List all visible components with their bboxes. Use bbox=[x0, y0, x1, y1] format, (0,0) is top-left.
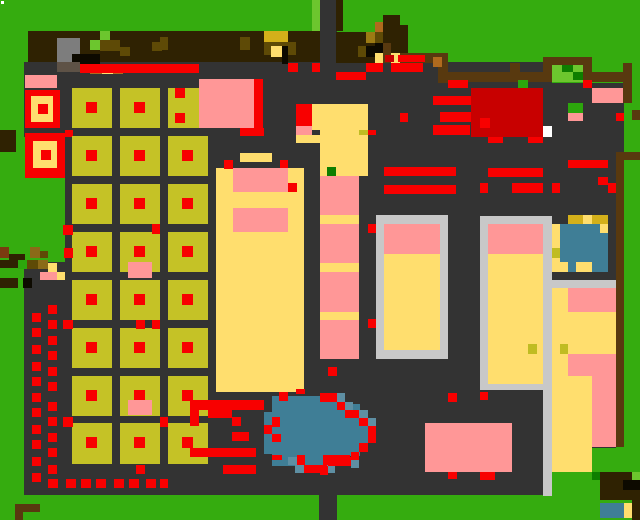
map-block-gold-roof bbox=[264, 31, 288, 42]
map-block-pale-building bbox=[488, 254, 543, 384]
map-block-shadow-black bbox=[375, 43, 383, 53]
map-block-white-marker bbox=[1, 1, 4, 4]
map-block-bush-green bbox=[327, 167, 336, 176]
map-block-red-item bbox=[359, 418, 368, 426]
map-block-olive-accent bbox=[560, 344, 568, 354]
map-block-tree-olive bbox=[240, 37, 250, 50]
map-block-red-item bbox=[48, 479, 58, 488]
map-block-silver-frame bbox=[543, 390, 552, 496]
map-block-dark-soil bbox=[0, 278, 18, 288]
map-block-red-item bbox=[368, 426, 376, 443]
map-block-red-item bbox=[583, 80, 592, 88]
map-block-dark-soil bbox=[0, 260, 18, 268]
map-block-red-item bbox=[48, 351, 57, 360]
map-block-red-item bbox=[391, 63, 423, 72]
map-block-pale-building bbox=[560, 262, 568, 272]
map-block-pale-building bbox=[320, 312, 359, 320]
map-block-red-item bbox=[48, 320, 57, 329]
map-block-tree-olive bbox=[40, 251, 48, 258]
map-block-fence-log bbox=[624, 152, 640, 160]
map-block-fence-log bbox=[632, 110, 640, 120]
map-block-red-item bbox=[240, 128, 264, 136]
map-block-red-item bbox=[48, 448, 57, 457]
map-block-red-item bbox=[351, 452, 359, 460]
map-block-bush-green bbox=[562, 65, 573, 72]
map-block-gate-green bbox=[568, 103, 583, 113]
map-block-red-item bbox=[160, 417, 168, 427]
map-block-red-item bbox=[398, 55, 425, 62]
map-block-red-item bbox=[48, 367, 57, 376]
map-block-pink-roof bbox=[592, 88, 623, 103]
map-block-red-item bbox=[182, 437, 193, 448]
map-block-red-item bbox=[134, 246, 145, 257]
map-block-red-item bbox=[232, 432, 249, 441]
map-block-red-item bbox=[480, 183, 488, 193]
map-block-red-item bbox=[296, 104, 312, 126]
game-map[interactable] bbox=[0, 0, 640, 520]
map-block-red-item bbox=[152, 224, 160, 234]
map-block-pink-roof bbox=[320, 320, 359, 359]
map-block-red-item bbox=[32, 362, 41, 371]
map-block-fence-log bbox=[623, 63, 632, 103]
map-block-red-item bbox=[134, 437, 145, 448]
map-block-red-item bbox=[254, 79, 263, 128]
map-block-light-grass bbox=[632, 472, 640, 480]
map-block-dark-soil bbox=[632, 490, 640, 520]
map-block-red-item bbox=[433, 96, 471, 105]
map-block-red-item bbox=[80, 64, 199, 73]
map-block-pale-building bbox=[240, 153, 272, 162]
map-block-pink-roof bbox=[488, 224, 543, 254]
map-block-fence-log bbox=[15, 512, 23, 520]
map-block-red-item bbox=[86, 198, 97, 209]
map-block-red-item bbox=[152, 320, 160, 329]
map-block-red-item bbox=[160, 479, 168, 488]
map-block-red-item bbox=[86, 437, 97, 448]
map-block-red-item bbox=[528, 137, 543, 143]
map-block-red-item bbox=[190, 410, 199, 426]
map-block-red-item bbox=[32, 313, 41, 322]
map-block-pale-building bbox=[552, 288, 592, 472]
map-block-pale-building bbox=[216, 168, 304, 392]
map-block-red-item bbox=[368, 130, 376, 135]
map-block-red-item bbox=[400, 113, 408, 122]
map-block-red-item bbox=[279, 392, 288, 401]
map-block-red-item bbox=[448, 80, 468, 88]
map-block-water-edge bbox=[337, 393, 345, 402]
map-block-red-item bbox=[86, 390, 97, 401]
map-block-red-item bbox=[134, 198, 145, 209]
map-block-red-item bbox=[345, 410, 359, 418]
map-block-bush-green bbox=[573, 72, 583, 80]
map-block-pale-building bbox=[384, 254, 440, 350]
map-block-tree-light-olive bbox=[30, 247, 40, 258]
map-block-fence-log bbox=[15, 504, 40, 512]
map-block-pale-building bbox=[57, 272, 65, 280]
map-block-red-item bbox=[136, 465, 145, 474]
map-block-pale-building bbox=[320, 104, 368, 176]
map-block-red-item bbox=[480, 392, 488, 400]
map-block-pink-roof bbox=[233, 208, 288, 232]
map-block-stone-brown bbox=[57, 62, 80, 72]
map-block-red-item bbox=[81, 479, 91, 488]
map-block-red-item bbox=[182, 150, 193, 161]
map-block-red-item bbox=[32, 377, 41, 386]
map-block-red-item bbox=[359, 443, 368, 452]
map-block-red-item bbox=[38, 104, 48, 114]
map-block-pink-roof bbox=[568, 354, 616, 376]
map-block-tree-light-olive bbox=[38, 260, 48, 269]
map-block-red-item bbox=[182, 198, 193, 209]
map-block-pale-building bbox=[576, 262, 592, 272]
map-block-red-item bbox=[63, 417, 73, 427]
map-block-shadow-black bbox=[623, 480, 640, 490]
map-block-red-item bbox=[264, 425, 272, 434]
map-block-red-item bbox=[512, 183, 543, 193]
map-block-light-grass bbox=[90, 40, 100, 50]
map-block-red-item bbox=[63, 320, 73, 329]
map-block-red-item bbox=[48, 382, 57, 391]
map-block-red-item bbox=[136, 320, 145, 329]
map-block-red-item bbox=[41, 150, 51, 160]
map-block-red-item bbox=[336, 72, 366, 80]
map-block-red-item bbox=[616, 113, 624, 121]
map-block-tree-olive bbox=[27, 260, 38, 269]
map-block-fence-log bbox=[592, 72, 623, 82]
map-block-red-item bbox=[175, 88, 185, 98]
map-block-red-item bbox=[208, 410, 232, 418]
map-block-red-item bbox=[48, 417, 57, 426]
map-block-tree-olive bbox=[120, 47, 130, 56]
map-block-olive-accent bbox=[528, 344, 537, 354]
map-block-red-item bbox=[224, 160, 233, 169]
map-block-water-blue bbox=[600, 503, 624, 518]
map-block-red-item bbox=[232, 417, 241, 426]
map-block-red-item bbox=[598, 177, 608, 185]
map-block-pale-building bbox=[312, 104, 320, 130]
map-block-white-marker bbox=[543, 126, 552, 137]
map-block-red-item bbox=[480, 472, 495, 480]
map-block-red-item bbox=[48, 336, 57, 345]
map-block-dark-soil bbox=[383, 15, 400, 25]
map-block-red-item bbox=[86, 246, 97, 257]
map-block-tree-olive bbox=[375, 32, 383, 43]
map-block-red-item bbox=[175, 113, 185, 123]
map-block-red-item bbox=[272, 417, 280, 427]
map-block-red-item bbox=[288, 183, 297, 192]
map-block-red-item bbox=[114, 479, 124, 488]
map-block-red-item bbox=[272, 434, 281, 442]
map-block-red-item bbox=[368, 224, 376, 233]
map-block-red-item bbox=[48, 433, 57, 442]
map-block-red-item bbox=[320, 393, 337, 402]
map-block-fence-log bbox=[616, 152, 624, 447]
map-block-fence-log bbox=[383, 43, 391, 53]
map-block-tree-olive bbox=[100, 40, 120, 51]
map-block-gate-green bbox=[518, 80, 528, 88]
map-block-red-item bbox=[32, 473, 41, 482]
map-block-red-item bbox=[32, 393, 41, 402]
map-block-pink-roof bbox=[568, 288, 616, 312]
map-block-pink-roof bbox=[128, 400, 152, 415]
map-block-red-item bbox=[86, 102, 97, 113]
map-block-water-edge bbox=[359, 410, 368, 418]
map-block-red-item bbox=[48, 465, 57, 474]
map-block-red-item bbox=[288, 63, 298, 72]
map-block-gate-green bbox=[18, 260, 27, 269]
map-block-red-item bbox=[134, 342, 145, 353]
map-block-olive-accent bbox=[552, 248, 560, 258]
map-block-pale-building bbox=[624, 503, 632, 518]
map-block-red-item bbox=[48, 402, 57, 411]
map-block-red-item bbox=[384, 167, 456, 176]
map-block-red-item bbox=[182, 294, 193, 305]
map-block-red-item bbox=[448, 393, 457, 402]
map-block-red-item bbox=[223, 465, 256, 474]
map-block-pink-roof bbox=[592, 376, 616, 447]
map-block-red-item bbox=[190, 400, 264, 410]
map-block-red-item bbox=[32, 440, 41, 449]
map-block-pale-building bbox=[583, 215, 592, 224]
map-block-red-item bbox=[568, 160, 608, 168]
map-block-red-item bbox=[433, 125, 470, 135]
map-block-pink-roof bbox=[199, 79, 254, 128]
map-block-red-item bbox=[96, 479, 106, 488]
map-block-pale-building bbox=[600, 224, 608, 233]
map-block-pale-building bbox=[320, 215, 359, 224]
map-block-pale-building bbox=[296, 135, 320, 143]
map-block-pale-building bbox=[375, 53, 383, 63]
map-block-orange-crate bbox=[433, 57, 442, 67]
map-block-red-item bbox=[134, 102, 145, 113]
map-block-pale-building bbox=[592, 312, 616, 354]
map-block-pink-roof bbox=[384, 224, 440, 254]
map-block-red-item bbox=[190, 448, 256, 457]
map-block-red-item bbox=[134, 294, 145, 305]
map-block-red-item bbox=[66, 479, 76, 488]
map-block-red-item bbox=[86, 294, 97, 305]
map-block-pink-roof bbox=[25, 75, 57, 88]
map-block-red-item bbox=[384, 185, 456, 194]
map-block-water-edge bbox=[288, 457, 297, 465]
map-block-red-item bbox=[272, 455, 282, 460]
map-block-red-item bbox=[337, 402, 345, 410]
map-block-red-item bbox=[182, 342, 193, 353]
map-block-pale-building bbox=[271, 46, 282, 57]
map-block-pink-roof bbox=[233, 168, 288, 192]
map-block-pink-roof bbox=[568, 113, 583, 121]
map-block-olive-accent bbox=[359, 130, 368, 135]
map-block-shadow-black bbox=[23, 278, 32, 288]
map-block-pink-roof bbox=[425, 423, 512, 472]
map-block-red-item bbox=[488, 168, 543, 177]
map-block-red-item bbox=[146, 479, 156, 488]
map-block-pale-building bbox=[320, 263, 359, 272]
map-block-red-item bbox=[297, 455, 305, 465]
map-block-red-item bbox=[48, 305, 57, 314]
map-block-red-item bbox=[32, 345, 41, 354]
map-block-tree-olive bbox=[358, 46, 366, 57]
map-block-grass bbox=[0, 262, 22, 495]
map-block-red-item bbox=[86, 342, 97, 353]
map-block-fence-log bbox=[583, 57, 592, 82]
map-block-red-item bbox=[32, 425, 41, 434]
map-block-light-grass bbox=[312, 0, 320, 31]
map-block-red-item bbox=[134, 150, 145, 161]
map-block-pink-roof bbox=[320, 224, 359, 263]
map-block-shadow-black bbox=[282, 46, 288, 64]
map-block-fence-log bbox=[543, 65, 552, 82]
map-block-red-item bbox=[296, 389, 305, 394]
map-block-red-item bbox=[86, 150, 97, 161]
map-block-red-item bbox=[448, 472, 457, 479]
map-block-bush-green bbox=[592, 472, 600, 480]
map-block-red-item bbox=[63, 225, 73, 235]
map-block-red-item bbox=[368, 319, 376, 328]
map-block-pink-roof bbox=[320, 176, 359, 215]
map-block-dirt-yard bbox=[319, 495, 337, 520]
map-block-red-item bbox=[366, 63, 383, 72]
map-block-shadow-black bbox=[366, 46, 375, 57]
map-block-red-item bbox=[488, 137, 503, 143]
map-block-red-item bbox=[129, 479, 139, 488]
map-block-golden-trunk bbox=[366, 32, 375, 43]
map-block-red-item bbox=[182, 246, 193, 257]
map-block-dark-red-building bbox=[471, 88, 543, 137]
map-block-red-item bbox=[328, 367, 337, 376]
map-block-red-item bbox=[552, 183, 560, 193]
map-block-red-item bbox=[312, 63, 320, 72]
map-block-pink-roof bbox=[320, 272, 359, 312]
map-block-red-item bbox=[440, 112, 471, 122]
map-block-pink-roof bbox=[40, 272, 57, 280]
map-block-red-brown-stump bbox=[0, 247, 9, 258]
map-block-red-item bbox=[32, 457, 41, 466]
map-block-dirt-yard bbox=[320, 0, 337, 62]
map-block-red-item bbox=[304, 465, 327, 473]
map-block-silver-frame bbox=[552, 280, 616, 288]
map-block-pink-roof bbox=[296, 126, 312, 135]
map-block-red-item bbox=[32, 408, 41, 417]
map-block-dark-soil bbox=[336, 0, 343, 31]
map-block-dark-red-building bbox=[385, 55, 394, 62]
map-block-dark-soil bbox=[0, 130, 16, 152]
map-block-red-item bbox=[480, 118, 490, 128]
map-block-red-item bbox=[323, 455, 350, 465]
map-block-red-item bbox=[64, 248, 73, 258]
map-block-red-item bbox=[32, 328, 41, 337]
map-block-tree-olive bbox=[160, 37, 168, 50]
map-block-water-edge bbox=[295, 465, 304, 473]
map-block-water-edge bbox=[327, 465, 335, 473]
map-block-water-edge bbox=[345, 402, 353, 410]
map-block-pink-roof bbox=[128, 262, 152, 278]
